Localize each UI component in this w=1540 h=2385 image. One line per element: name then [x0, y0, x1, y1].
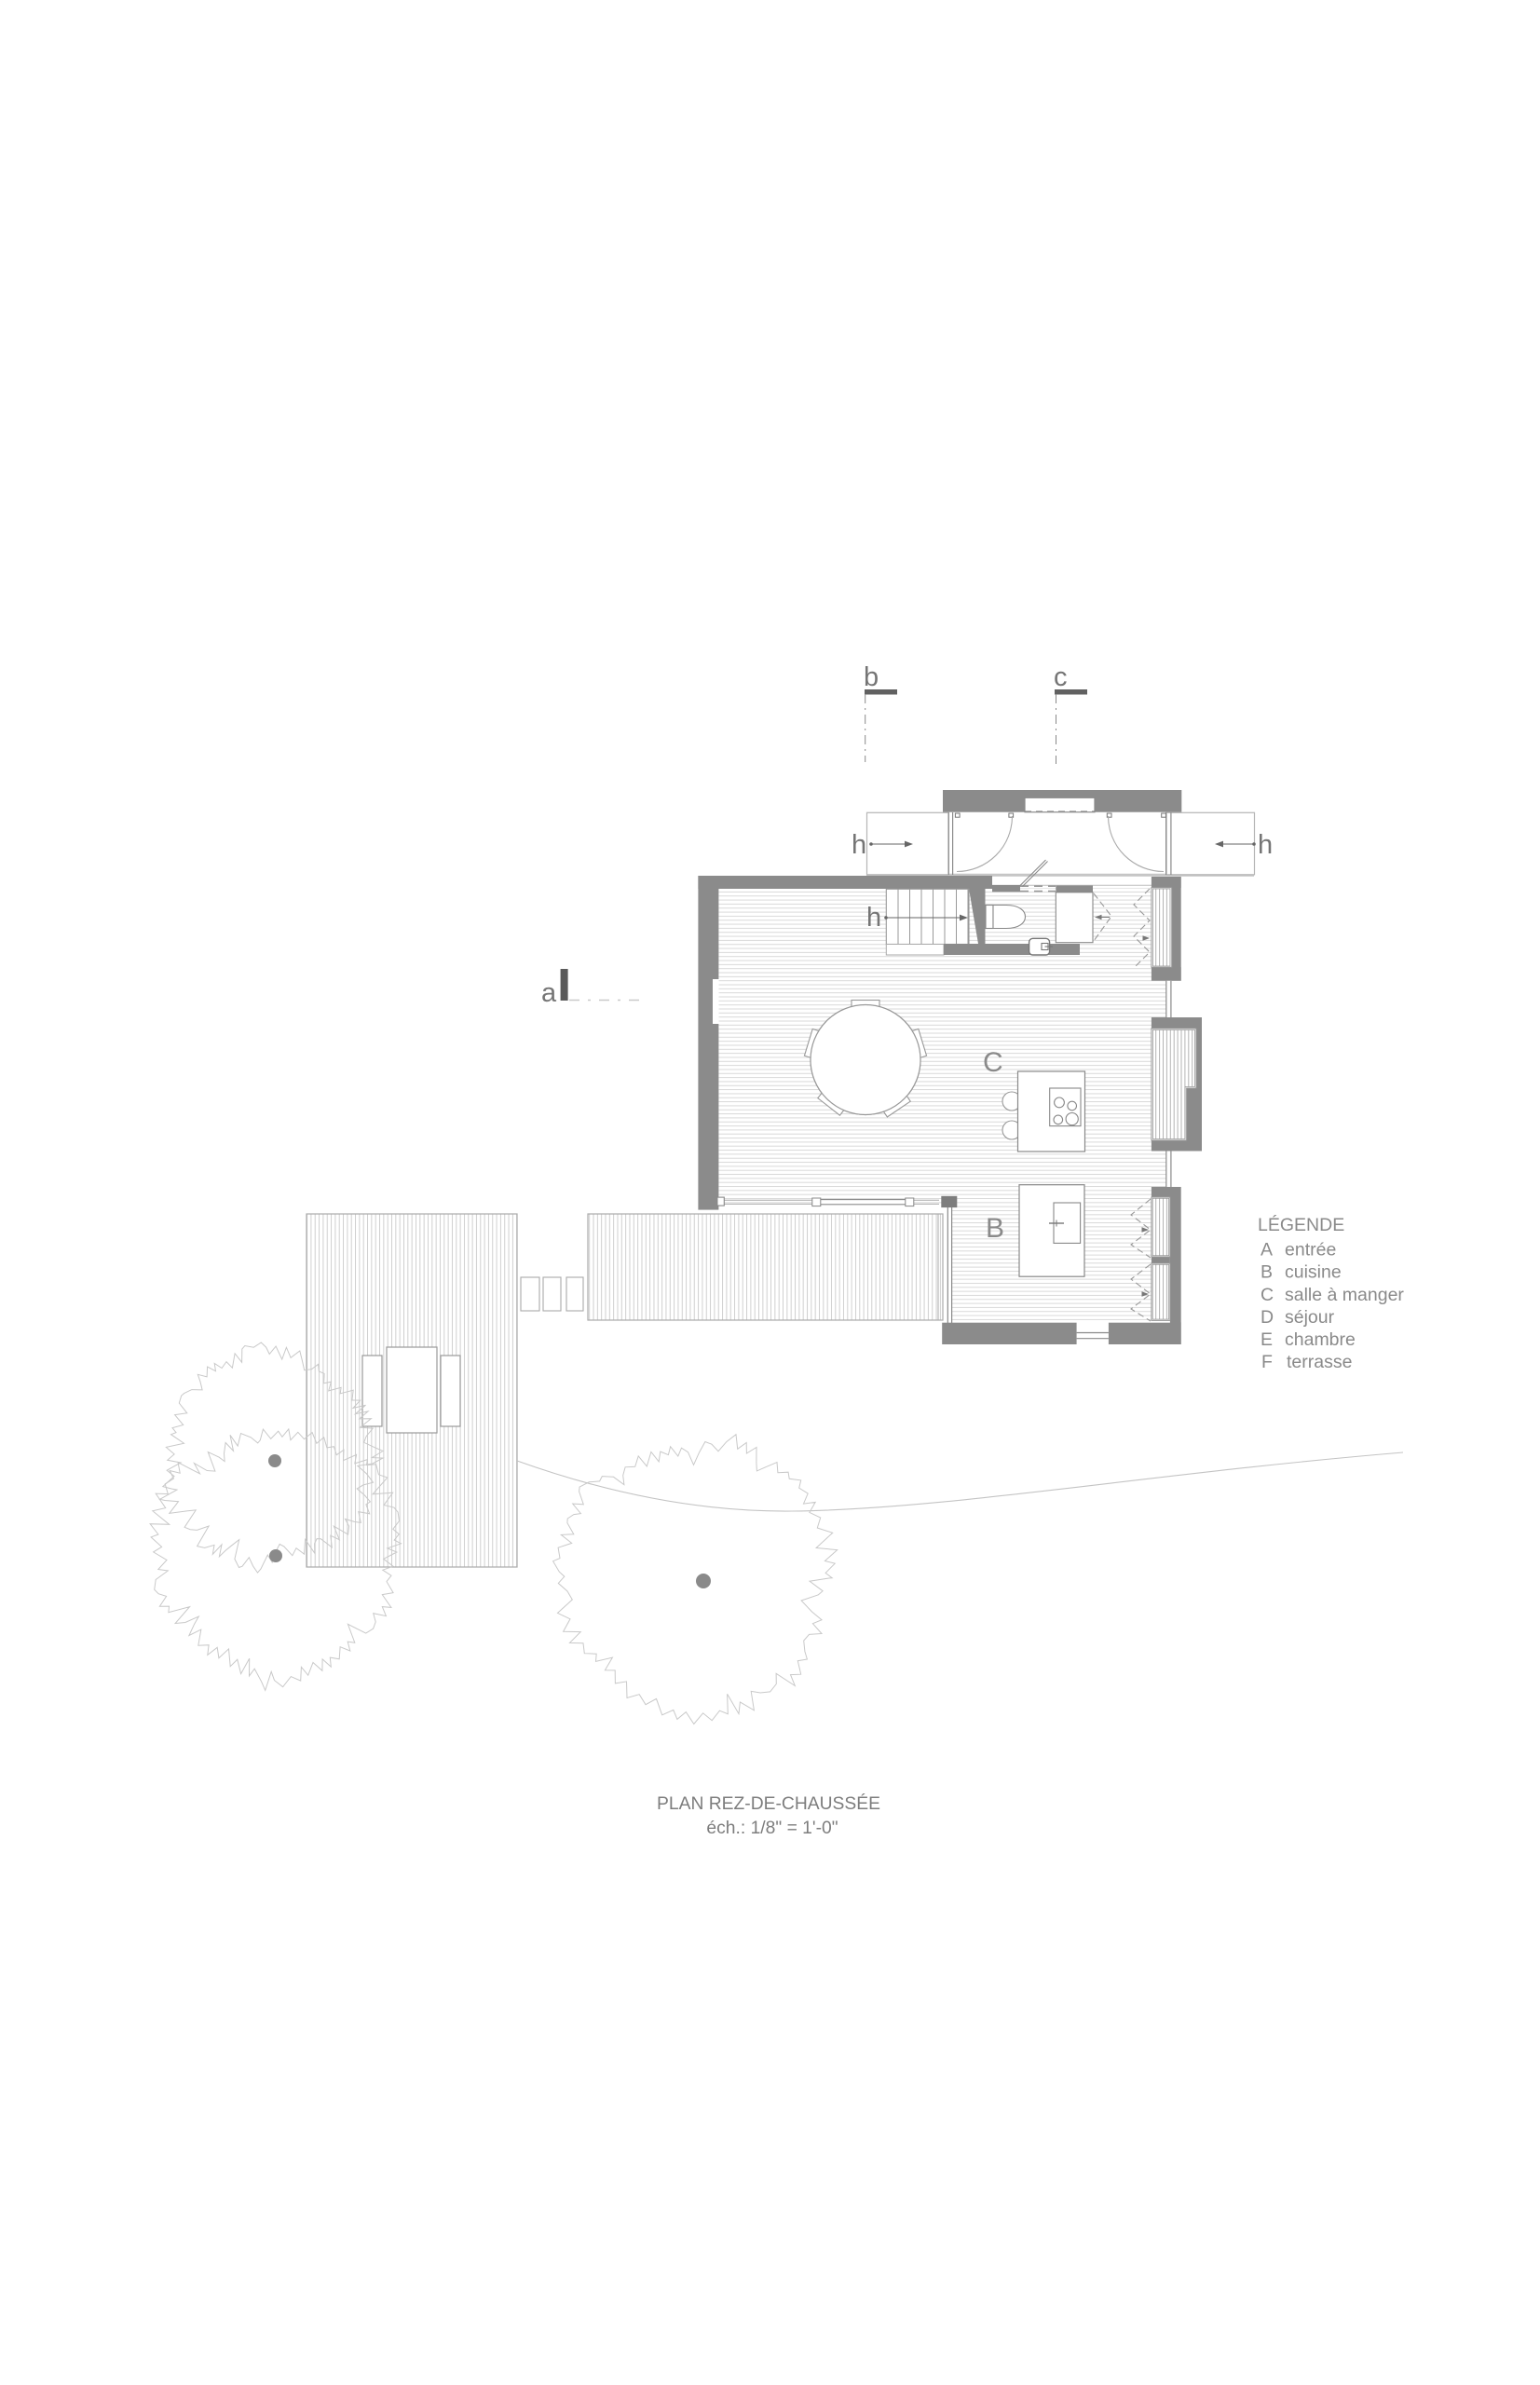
svg-text:cuisine: cuisine — [1285, 1262, 1342, 1283]
svg-text:b: b — [864, 662, 879, 692]
svg-text:B: B — [1261, 1262, 1273, 1283]
svg-text:E: E — [1261, 1329, 1273, 1350]
svg-text:C: C — [983, 1047, 1003, 1078]
svg-text:B: B — [986, 1213, 1004, 1244]
svg-text:c: c — [1054, 662, 1068, 692]
svg-text:salle à manger: salle à manger — [1285, 1285, 1404, 1305]
svg-text:F: F — [1261, 1352, 1273, 1372]
svg-text:h: h — [1258, 830, 1273, 860]
svg-text:h: h — [866, 903, 881, 933]
svg-text:C: C — [1261, 1285, 1274, 1305]
svg-text:h: h — [852, 830, 866, 860]
svg-text:A: A — [1261, 1240, 1273, 1261]
svg-text:D: D — [1261, 1307, 1274, 1328]
svg-text:PLAN REZ-DE-CHAUSSÉE: PLAN REZ-DE-CHAUSSÉE — [657, 1792, 880, 1814]
svg-text:entrée: entrée — [1285, 1240, 1336, 1261]
svg-text:terrasse: terrasse — [1287, 1352, 1352, 1372]
svg-text:chambre: chambre — [1285, 1329, 1356, 1350]
svg-text:séjour: séjour — [1285, 1307, 1335, 1328]
svg-text:LÉGENDE: LÉGENDE — [1258, 1214, 1344, 1235]
svg-text:a: a — [541, 978, 557, 1008]
svg-text:éch.: 1/8" = 1'-0": éch.: 1/8" = 1'-0" — [706, 1819, 838, 1838]
